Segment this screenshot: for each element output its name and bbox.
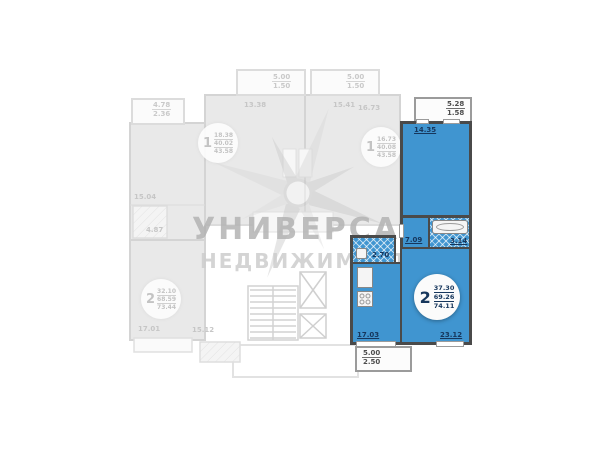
faded-lower-room [200, 342, 240, 362]
apartment-badge[interactable]: 2 37.30 69.26 74.11 [414, 274, 460, 320]
staircase [248, 286, 298, 340]
faded-room-label: 15.04 [134, 193, 156, 201]
living-area-label: 23.12 [440, 331, 462, 339]
stove-icon [357, 291, 373, 307]
bathroom-area-label: 3.14 [450, 237, 467, 245]
entrance-door [399, 224, 404, 238]
faded-balcony-c1-label: 5.001.50 [272, 73, 291, 90]
toilet-icon [356, 248, 367, 259]
window [443, 119, 460, 124]
hall-area-label: 7.09 [405, 236, 422, 244]
faded-bath-label: 4.87 [146, 226, 163, 234]
balcony-top-label: 5.281.58 [446, 100, 465, 117]
total-area: 69.26 [434, 293, 455, 302]
faded-apartment-badge: 2 32.1068.5973.44 [141, 279, 181, 319]
faded-balcony-tl-label: 4.782.36 [152, 101, 171, 118]
window [416, 119, 429, 124]
faded-lower-corridor [233, 345, 358, 377]
window [436, 341, 464, 347]
faded-balcony-center-1 [237, 70, 305, 95]
room-bedroom [400, 121, 472, 218]
total-area-with-balcony: 74.11 [434, 302, 455, 310]
elevator-shaft-2 [300, 314, 326, 338]
faded-room-label: 15.12 [192, 326, 214, 334]
faded-balcony-bottom-left [134, 338, 192, 352]
floorplan-canvas: 4.782.36 5.001.50 5.001.50 15.04 13.38 1… [0, 0, 600, 449]
bedroom-area-label: 14.35 [414, 126, 436, 134]
fridge-icon [357, 267, 373, 288]
faded-room-label: 17.01 [138, 325, 160, 333]
faded-balcony-c2-label: 5.001.50 [346, 73, 365, 90]
room-count: 2 [420, 288, 431, 307]
living-area: 37.30 [434, 284, 455, 293]
faded-balcony-center-2 [311, 70, 379, 95]
wc-area-label: 2.70 [372, 251, 389, 259]
kitchen-area-label: 17.03 [357, 331, 379, 339]
balcony-bottom-label: 5.002.50 [362, 349, 381, 366]
bathtub-icon [432, 220, 468, 234]
